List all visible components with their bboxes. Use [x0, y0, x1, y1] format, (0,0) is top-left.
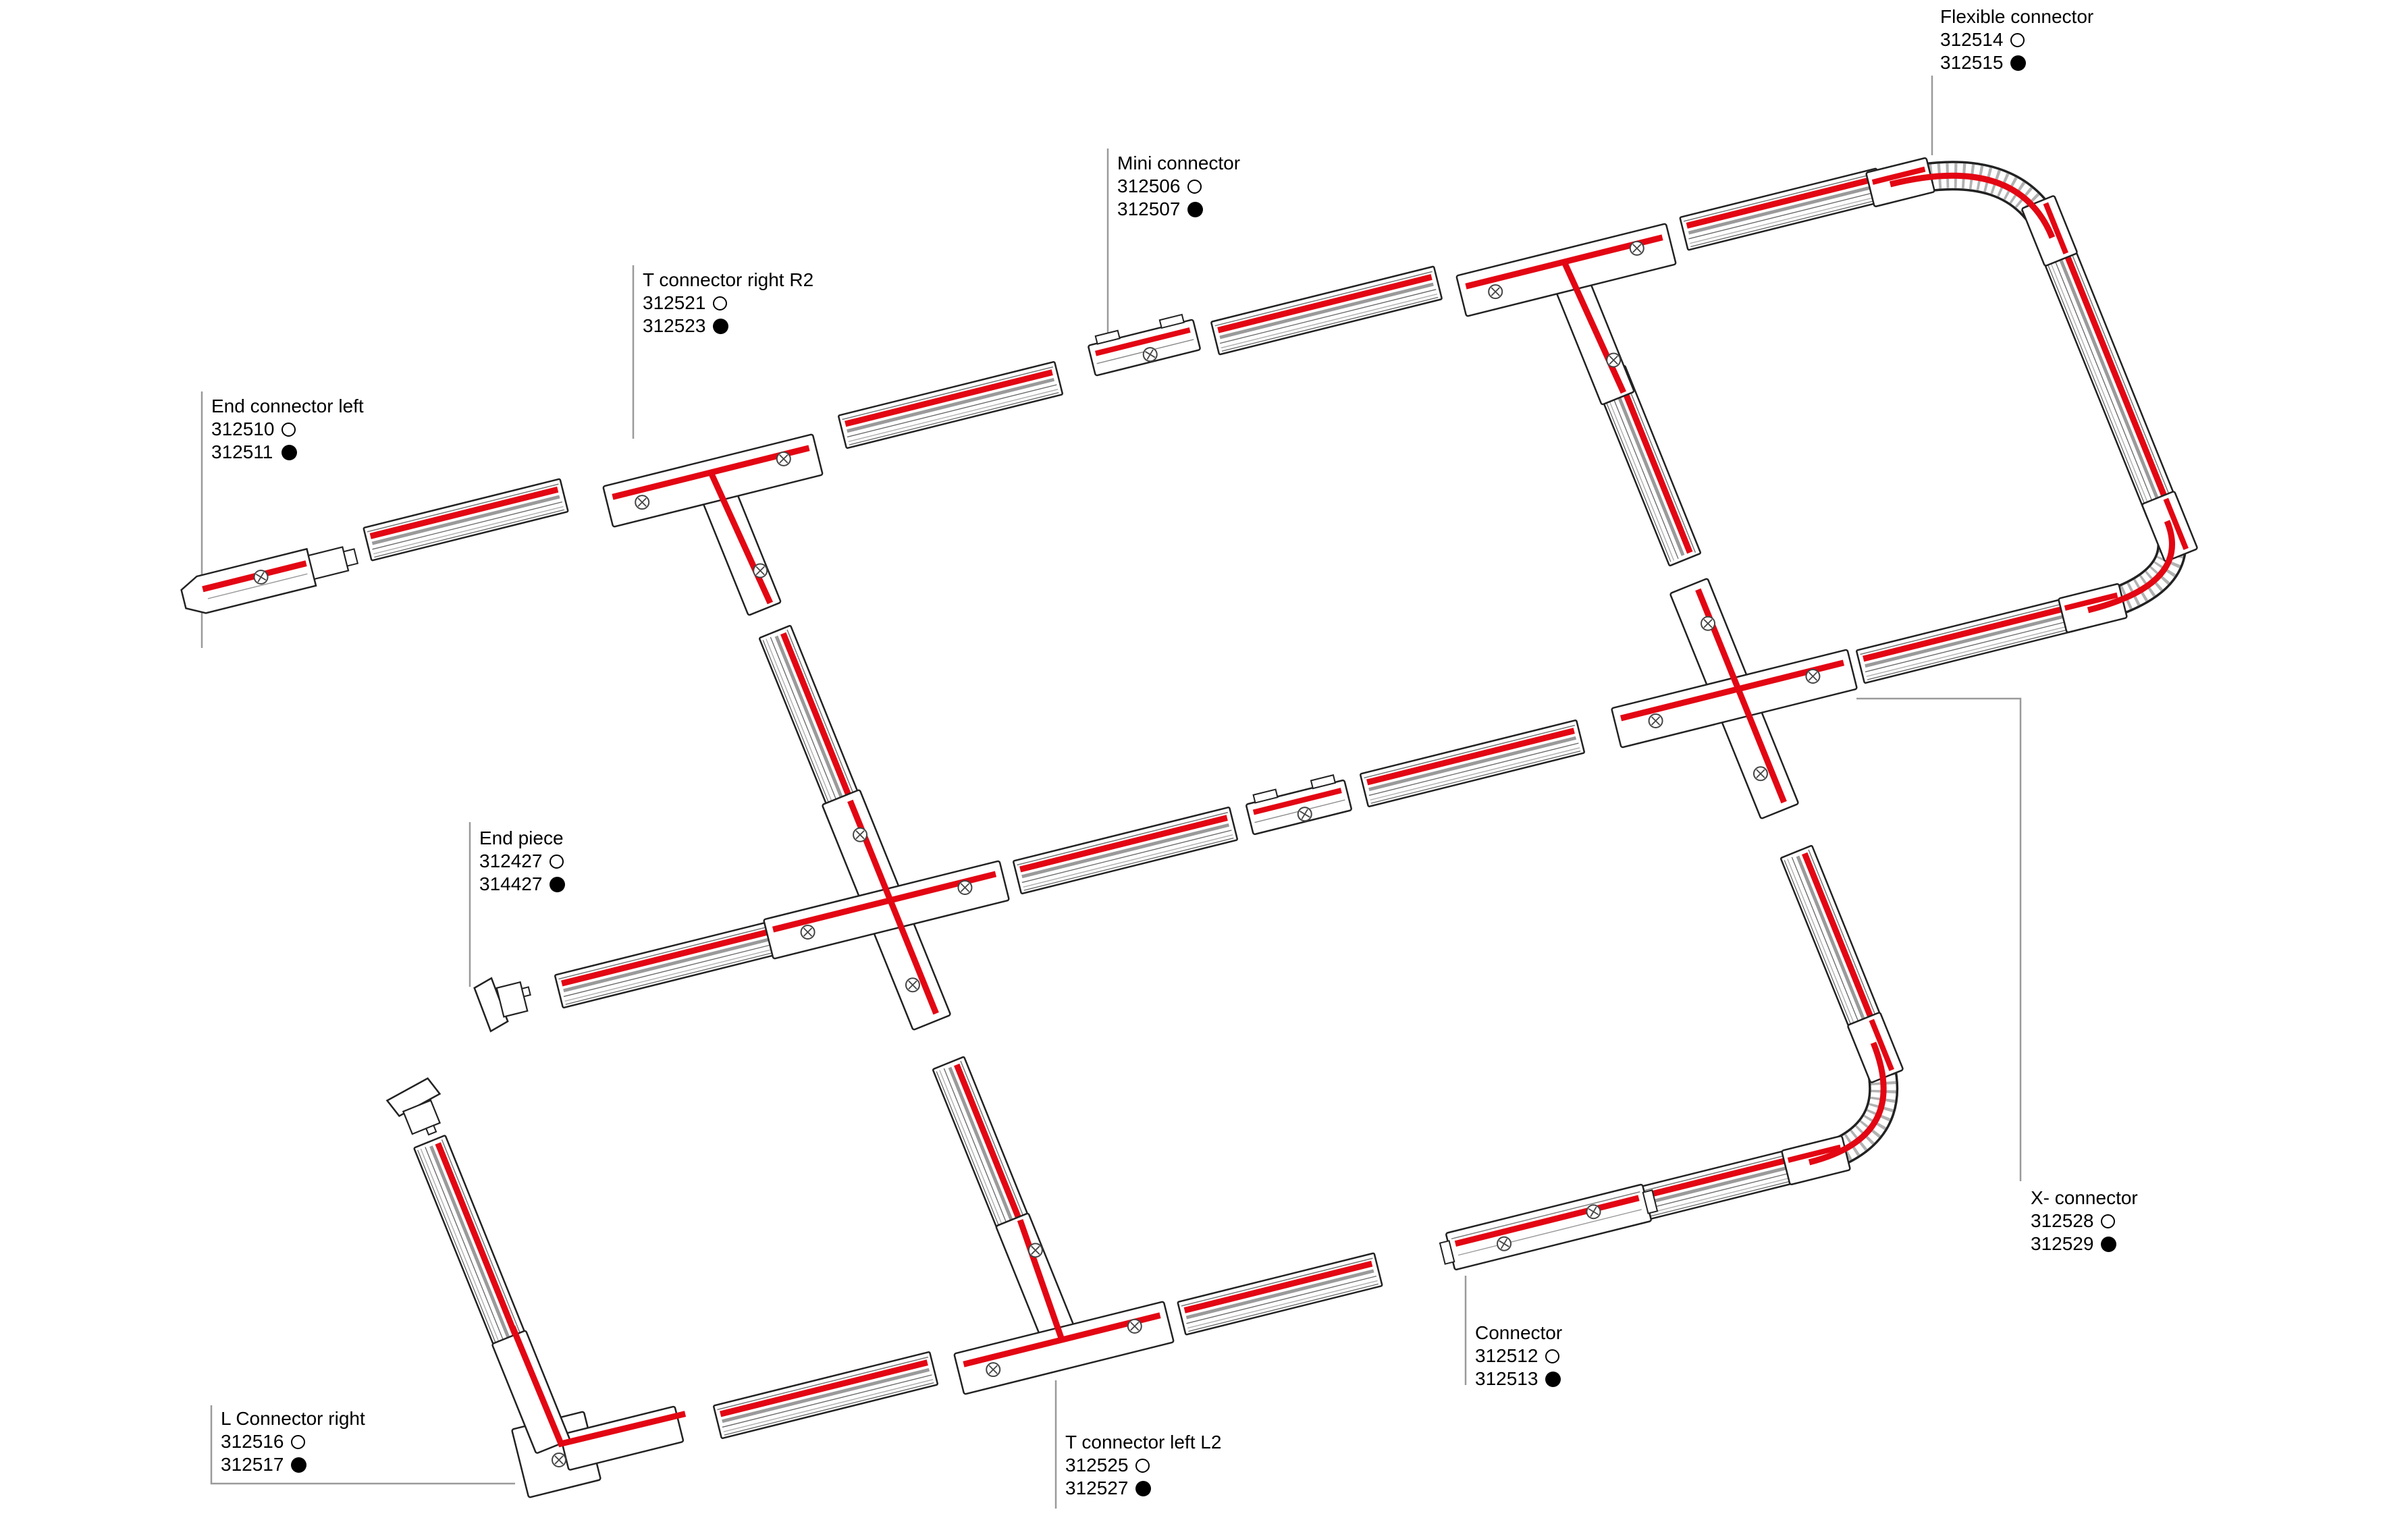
open-circle-icon — [2101, 1214, 2115, 1228]
track-segment — [555, 921, 779, 1008]
article-number: 312427 — [479, 850, 550, 873]
part-label-t-connector-left-l2: T connector left L2 312525 312527 — [1065, 1431, 1221, 1500]
filled-circle-icon — [1135, 1481, 1151, 1496]
diagram-canvas — [0, 0, 2408, 1518]
part-name: T connector right R2 — [643, 269, 813, 292]
filled-circle-icon — [282, 445, 297, 460]
article-number: 312517 — [221, 1453, 291, 1476]
part-name: Connector — [1475, 1322, 1562, 1345]
article-number: 312510 — [211, 418, 282, 441]
track-segment — [838, 362, 1063, 448]
article-number: 312513 — [1475, 1367, 1545, 1390]
part-label-connector: Connector 312512 312513 — [1475, 1322, 1562, 1390]
part-name: Mini connector — [1117, 152, 1240, 175]
track-segment — [1013, 807, 1237, 894]
article-number: 312506 — [1117, 175, 1187, 198]
filled-circle-icon — [713, 319, 728, 334]
t-leg — [996, 1213, 1074, 1338]
open-circle-icon — [282, 423, 296, 437]
screw-icon — [1029, 1243, 1042, 1257]
end-connector-part — [179, 538, 360, 618]
part-name: X- connector — [2031, 1187, 2138, 1210]
screw-icon — [1806, 670, 1819, 683]
screw-icon — [552, 1453, 566, 1467]
article-number: 312521 — [643, 292, 713, 315]
screw-icon — [777, 452, 791, 466]
straight-connector-part — [1438, 1183, 1659, 1272]
open-circle-icon — [1187, 180, 1202, 194]
part-name: End piece — [479, 827, 565, 850]
mini-connector-part — [1244, 773, 1352, 835]
open-circle-icon — [2010, 33, 2025, 47]
screw-icon — [906, 978, 919, 992]
screw-icon — [1701, 617, 1715, 630]
screw-icon — [1607, 353, 1620, 367]
track-segment — [1360, 720, 1584, 807]
screw-icon — [801, 925, 815, 939]
article-number: 312511 — [211, 441, 282, 464]
end-piece-part — [385, 1077, 452, 1145]
part-label-end-connector-left: End connector left 312510 312511 — [211, 395, 364, 464]
part-label-mini-connector: Mini connector 312506 312507 — [1117, 152, 1240, 221]
article-number: 312527 — [1065, 1477, 1135, 1500]
track-segment — [1211, 267, 1442, 355]
part-label-l-connector-right: L Connector right 312516 312517 — [221, 1407, 365, 1476]
screw-icon — [1489, 285, 1502, 298]
filled-circle-icon — [1545, 1372, 1561, 1387]
track-segment — [1680, 168, 1884, 250]
track-segment — [363, 479, 568, 560]
article-number: 312529 — [2031, 1232, 2101, 1255]
open-circle-icon — [291, 1435, 305, 1449]
part-name: L Connector right — [221, 1407, 365, 1430]
track-segment — [714, 1352, 938, 1438]
track-system-diagram: Flexible connector 312514 312515 Mini co… — [0, 0, 2408, 1518]
screw-icon — [1128, 1320, 1142, 1333]
open-circle-icon — [1545, 1349, 1559, 1363]
part-name: Flexible connector — [1940, 5, 2093, 28]
article-number: 312525 — [1065, 1454, 1135, 1477]
filled-circle-icon — [550, 877, 565, 892]
mini-connector-part — [1086, 313, 1200, 376]
article-number: 312514 — [1940, 28, 2010, 51]
filled-circle-icon — [291, 1457, 306, 1473]
open-circle-icon — [713, 296, 727, 310]
screw-icon — [635, 495, 649, 509]
track-segment — [1856, 597, 2081, 683]
article-number: 312523 — [643, 315, 713, 337]
article-number: 312507 — [1117, 198, 1187, 221]
screw-icon — [986, 1363, 1000, 1376]
screw-icon — [753, 564, 767, 577]
filled-circle-icon — [2101, 1237, 2116, 1252]
article-number: 312528 — [2031, 1210, 2101, 1232]
track-segment — [1177, 1253, 1382, 1334]
screw-icon — [1649, 714, 1663, 728]
end-piece-part — [473, 970, 537, 1033]
part-label-end-piece: End piece 312427 314427 — [479, 827, 565, 896]
article-number: 312515 — [1940, 51, 2010, 74]
part-label-x-connector: X- connector 312528 312529 — [2031, 1187, 2138, 1255]
screw-icon — [1754, 767, 1767, 780]
screw-icon — [958, 881, 971, 894]
filled-circle-icon — [2010, 55, 2026, 71]
part-name: End connector left — [211, 395, 364, 418]
part-label-t-connector-right-r2: T connector right R2 312521 312523 — [643, 269, 813, 337]
screw-icon — [1630, 242, 1644, 255]
open-circle-icon — [550, 855, 564, 869]
part-name: T connector left L2 — [1065, 1431, 1221, 1454]
track-segment — [2041, 244, 2179, 519]
article-number: 312512 — [1475, 1345, 1545, 1367]
article-number: 312516 — [221, 1430, 291, 1453]
open-circle-icon — [1135, 1459, 1150, 1473]
part-label-flexible-connector: Flexible connector 312514 312515 — [1940, 5, 2093, 74]
article-number: 314427 — [479, 873, 550, 896]
screw-icon — [853, 828, 867, 842]
filled-circle-icon — [1187, 202, 1203, 217]
